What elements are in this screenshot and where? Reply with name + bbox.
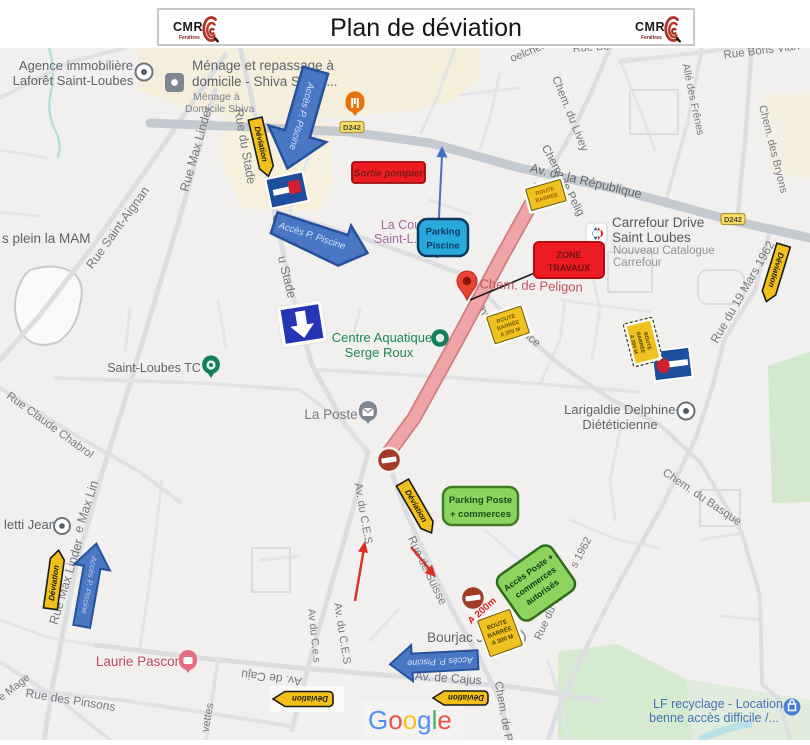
svg-text:Allé des Frênes: Allé des Frênes: [679, 62, 706, 136]
svg-text:Sortie pompier: Sortie pompier: [354, 169, 424, 180]
svg-text:ZONE: ZONE: [556, 250, 581, 260]
svg-text:Diététicienne: Diététicienne: [582, 417, 657, 432]
svg-text:letti Jean: letti Jean: [4, 517, 56, 532]
svg-text:Av. du C.E.S: Av. du C.E.S: [352, 482, 375, 545]
svg-text:Nouveau Catalogue: Nouveau Catalogue: [613, 245, 715, 257]
svg-text:La Poste: La Poste: [304, 407, 357, 422]
svg-text:Carrefour Drive: Carrefour Drive: [612, 215, 704, 230]
svg-text:oelcher: oelcher: [509, 48, 547, 65]
svg-text:Parking Poste: Parking Poste: [449, 495, 512, 506]
svg-text:benne accès difficile /...: benne accès difficile /...: [649, 711, 779, 725]
svg-text:vettes: vettes: [200, 701, 217, 732]
svg-text:Serge Roux: Serge Roux: [345, 345, 414, 360]
svg-text:Chem. du Livey: Chem. du Livey: [549, 75, 590, 154]
svg-text:Laurie Pascon: Laurie Pascon: [96, 654, 182, 669]
svg-text:Av. du C.E.S: Av. du C.E.S: [331, 602, 353, 665]
svg-text:D242: D242: [724, 215, 742, 224]
svg-text:Parking: Parking: [426, 227, 461, 238]
svg-text:s 1962: s 1962: [568, 535, 594, 570]
svg-text:TRAVAUX: TRAVAUX: [548, 263, 590, 273]
svg-text:Fenêtres: Fenêtres: [641, 35, 662, 41]
svg-text:Piscine: Piscine: [426, 241, 459, 252]
svg-text:Larigaldie Delphine-: Larigaldie Delphine-: [564, 402, 680, 417]
svg-text:Laforêt Saint-Loubes: Laforêt Saint-Loubes: [13, 73, 134, 88]
svg-text:Av. de Caju: Av. de Caju: [240, 667, 302, 688]
svg-text:D242: D242: [343, 123, 361, 132]
svg-text:Agence immobilière: Agence immobilière: [19, 58, 133, 73]
svg-text:Déviation: Déviation: [292, 694, 328, 703]
svg-text:Saint-Loubes TC: Saint-Loubes TC: [107, 361, 201, 375]
svg-text:Rue Saint-Aignan: Rue Saint-Aignan: [83, 184, 152, 272]
svg-text:Saint Loubes: Saint Loubes: [612, 230, 691, 245]
svg-text:LF recyclage - Location: LF recyclage - Location: [653, 697, 783, 711]
svg-text:La Cou: La Cou: [381, 218, 421, 232]
svg-text:Carrefour: Carrefour: [613, 257, 662, 269]
svg-text:s plein la MAM: s plein la MAM: [2, 231, 91, 246]
svg-text:+ commerces: + commerces: [450, 509, 511, 520]
svg-text:Rue Claude Chabrol: Rue Claude Chabrol: [4, 390, 95, 461]
svg-text:e Max Lin: e Max Lin: [71, 479, 101, 535]
svg-text:Rue Bo: Rue Bo: [572, 48, 609, 55]
svg-text:Rue Boris Vian: Rue Boris Vian: [723, 48, 800, 62]
svg-text:u Stade: u Stade: [275, 254, 299, 299]
svg-text:Google: Google: [368, 705, 452, 735]
svg-text:Saint-L...: Saint-L...: [374, 232, 424, 246]
svg-text:Centre Aquatique: Centre Aquatique: [332, 330, 432, 345]
svg-text:Déviation: Déviation: [448, 693, 484, 702]
svg-text:Ménage à: Ménage à: [193, 91, 240, 103]
svg-text:CMR: CMR: [635, 20, 665, 34]
svg-text:Chem. du Basque: Chem. du Basque: [660, 467, 743, 528]
